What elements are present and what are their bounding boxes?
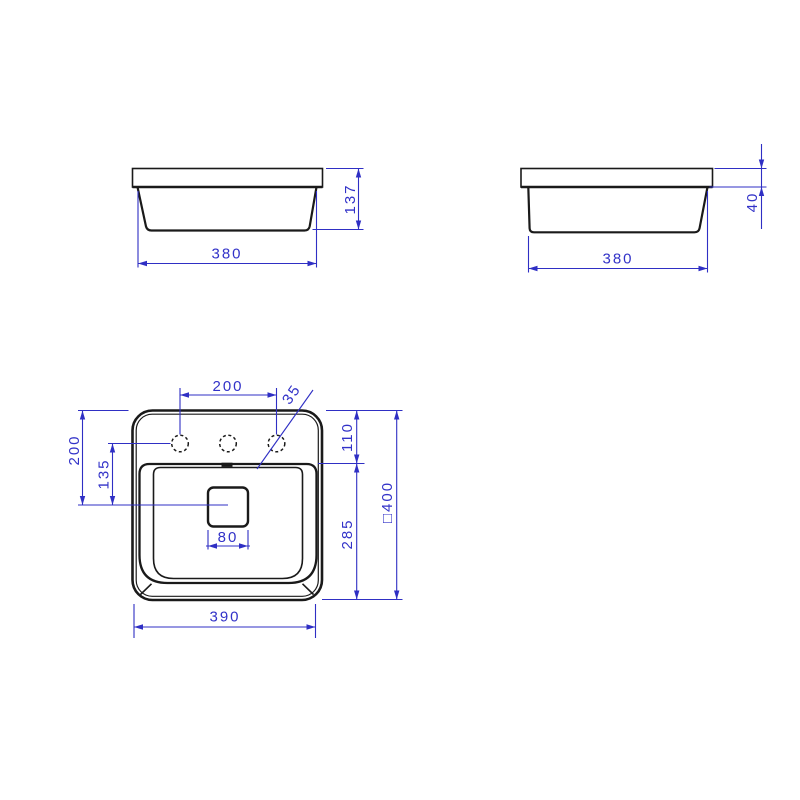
dimension-rim-height-40: 40 <box>710 144 767 229</box>
dimension-height-137: 137 <box>313 169 364 230</box>
arrowhead <box>307 624 316 629</box>
bowl-profile <box>528 187 707 232</box>
arrowhead <box>180 392 189 397</box>
faucet-hole-center <box>220 435 237 452</box>
technical-drawing-canvas: 380 137 380 <box>0 0 800 800</box>
dim-label-137: 137 <box>342 183 359 214</box>
arrowhead <box>394 591 399 600</box>
dim-label-390: 390 <box>209 609 240 626</box>
dim-label-380: 380 <box>211 246 242 263</box>
dim-label-35: 35 <box>279 381 305 408</box>
dimension-edge-to-drain-200: 200 <box>66 411 129 506</box>
arrowhead <box>110 496 115 505</box>
arrowhead <box>268 392 277 397</box>
dim-label-200: 200 <box>66 434 83 465</box>
dimension-bottom-width-390: 390 <box>134 604 316 638</box>
arrowhead <box>354 455 359 464</box>
dimension-hole-spacing-200: 200 <box>180 378 277 435</box>
dimension-width-380: 380 <box>138 191 317 268</box>
arrowhead <box>80 496 85 505</box>
arrowhead <box>138 261 147 266</box>
dimension-drain-80: 80 <box>206 529 250 550</box>
arrowhead <box>394 411 399 420</box>
arrowhead <box>208 543 217 548</box>
basin-opening-outline <box>140 464 317 583</box>
arrowhead <box>356 221 361 230</box>
dimension-overall-400: □400 <box>379 411 399 600</box>
arrowhead <box>354 464 359 473</box>
arrowhead <box>759 160 764 169</box>
corner-tick <box>303 584 314 595</box>
dim-label-110: 110 <box>339 422 356 452</box>
arrowhead <box>134 624 143 629</box>
side-view-a: 380 137 <box>133 169 364 268</box>
leader-hole-diameter-35: 35 <box>257 381 313 469</box>
arrowhead <box>239 543 248 548</box>
arrowhead <box>354 591 359 600</box>
dimension-edge-to-basin-110: 110 <box>318 411 403 464</box>
arrowhead <box>356 169 361 178</box>
basin-rim-profile <box>133 169 323 188</box>
drain-square <box>208 488 248 527</box>
dim-label-285: 285 <box>339 518 356 549</box>
dim-label-200: 200 <box>212 378 243 395</box>
dim-label-135: 135 <box>96 458 113 489</box>
plan-view: 200 35 200 135 <box>66 378 403 638</box>
arrowhead <box>699 266 708 271</box>
dim-label-380: 380 <box>602 251 633 268</box>
dim-label-square-400: □400 <box>379 481 396 523</box>
side-view-b: 380 40 <box>521 144 767 273</box>
corner-tick <box>141 584 152 595</box>
arrowhead <box>110 444 115 453</box>
dim-label-40: 40 <box>744 192 761 213</box>
arrowhead <box>308 261 317 266</box>
arrowhead <box>529 266 538 271</box>
arrowhead <box>80 411 85 420</box>
arrowhead <box>354 411 359 420</box>
faucet-hole-left <box>172 435 189 452</box>
bowl-profile <box>138 187 317 231</box>
basin-bottom-outline <box>154 468 303 579</box>
basin-rim-profile <box>521 169 713 188</box>
dim-label-80: 80 <box>218 529 239 546</box>
drawing-sheet: 380 137 380 <box>0 0 800 800</box>
